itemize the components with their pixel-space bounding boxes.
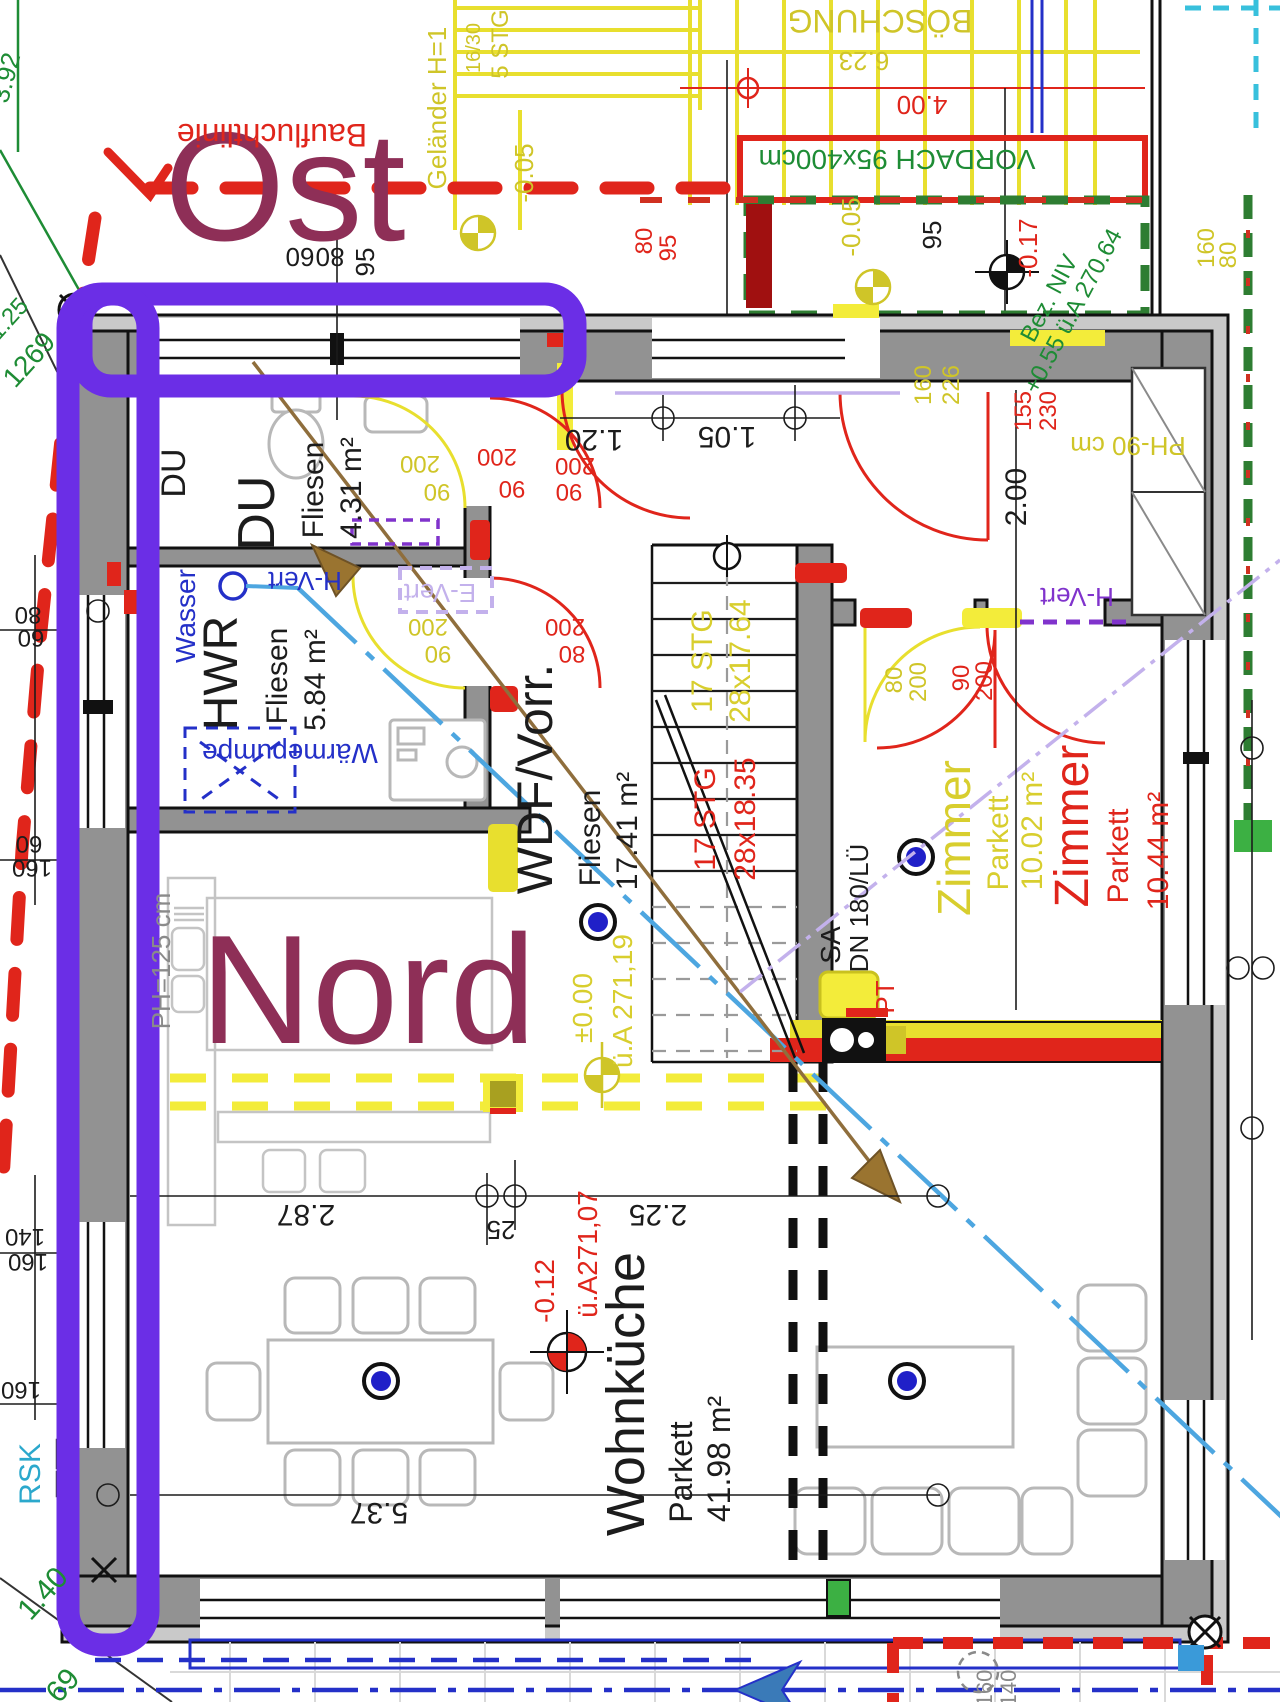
stg1630-label: 16/30 [463,23,485,73]
wdf-room-area: 17.41 m² [611,772,644,890]
kueche-room-area: 41.98 m² [701,1396,737,1523]
dim-80y: 80 [1215,242,1242,269]
ph125-label: PH=125 cm [146,893,176,1030]
zimmer-y-area: 10.02 m² [1016,772,1049,890]
boeschung-label: BÖSCHUNG [788,3,973,39]
stg5-label: 5 STG [487,9,514,78]
level-ua19: ü.A 271,19 [607,934,638,1068]
dim-80r: 80 [631,228,658,255]
kueche-room-name: Wohnküche [596,1252,656,1536]
zimmer-y-floor: Parkett [982,795,1015,891]
gelaender-label: Geländer H=1 [422,27,452,190]
sa-label: SA [815,926,846,964]
ldim-160c: 160 [1,1376,41,1403]
dim-225: 2.25 [629,1198,687,1231]
du-room-floor: Fliesen [297,442,330,539]
dim-400: 4.00 [897,90,948,120]
du-door-y90: 90 [424,478,451,505]
hwr-room-name: HWR [195,616,248,731]
dim-623: 6.23 [839,46,890,76]
dim-105: 1.05 [698,420,756,453]
floorplan-canvas: Ost Nord Baufluchtlinie Geländer H=1 5 S… [0,0,1280,1702]
green-392: 3.92 [0,49,26,106]
green-69: 69 [40,1662,87,1702]
dim-120: 1.20 [565,423,623,456]
du-door-r90: 90 [499,475,526,502]
hvert2-label: H-Vert [1039,582,1113,612]
wdf-door-y90: 90 [425,640,452,667]
dim-160w: 160 [910,365,937,405]
dn-label: DN 180/LÜ [844,844,874,973]
zimmer-door-y200: 200 [905,662,932,702]
compass-nord: Nord [200,903,536,1076]
kueche-room-floor: Parkett [663,1421,699,1522]
light-icon [364,1364,398,1398]
dim-287: 2.87 [277,1198,335,1231]
zimmer-door-r200: 200 [971,661,998,701]
level-000: ±0.00 [567,973,598,1043]
wdf-door-r200: 200 [545,613,585,640]
waermepumpe-label: Wärmepumpe [202,738,378,769]
dim-005b: -0.05 [836,197,866,256]
ldim-160b: 160 [8,1248,48,1275]
zimmer-r-floor: Parkett [1102,808,1135,904]
entry-door-r90: 90 [556,478,583,505]
wdf-door-r80: 80 [559,640,586,667]
light-icon [581,905,615,939]
level-marker-icon [856,270,890,304]
stair-red-stg: 17 STG [689,767,722,870]
du-room-name: DU [228,475,286,550]
stair-yellow-stg: 17 STG [686,609,719,712]
ldim-160a: 160 [12,854,52,881]
hwr-room-area: 5.84 m² [299,629,332,731]
dim-005a: -0.05 [509,143,539,202]
pt-label: PT [870,980,900,1013]
dim-226: 226 [938,365,965,405]
dim-95b: 95 [917,221,947,250]
stair-yellow-step: 28x17.64 [724,599,757,722]
du-room-area: 4.31 m² [335,437,368,539]
hvert1-label: H-Vert [267,566,341,596]
du-door-r200: 200 [477,443,517,470]
zimmer-r-name: Zimmer [1046,745,1099,908]
dim-230: 230 [1035,391,1062,431]
bdim-160: 160 [972,1670,997,1702]
light-icon [890,1364,924,1398]
vordach-label: VORDACH 95x400cm [759,144,1036,175]
du-door-y200: 200 [400,450,440,477]
zimmer-r-area: 10.44 m² [1142,792,1175,910]
baufluchtlinie-label: Baufluchtlinie [177,117,367,153]
dim-95c: 95 [655,235,682,262]
level-marker-icon [461,216,495,250]
dim-95a: 95 [350,248,380,277]
wdf-door-y200: 200 [408,613,448,640]
du-small-label: DU [155,448,193,497]
dim-537: 5.37 [350,1496,408,1529]
entry-door-r200: 200 [555,452,595,479]
dim-017: -0.17 [1013,218,1043,277]
wasser-label: Wasser [170,569,201,663]
bdim-140: 140 [996,1670,1021,1702]
dim-80: 80 [316,242,345,272]
ldim-60b: 60 [16,830,43,857]
dim-155: 155 [1010,391,1037,431]
ldim-140: 140 [5,1223,45,1250]
ldim-60a: 60 [18,624,45,651]
dim-60: 60 [286,242,315,272]
hwr-room-floor: Fliesen [261,628,294,725]
dim-25: 25 [487,1215,516,1245]
wdf-room-floor: Fliesen [574,790,607,887]
rsk-label: RSK [14,1443,47,1505]
zimmer-y-name: Zimmer [928,760,980,916]
text-labels: Ost Nord Baufluchtlinie Geländer H=1 5 S… [0,3,1242,1702]
evert-label: E-Vert [403,578,476,608]
level-012: -0.12 [529,1259,560,1323]
dim-200v: 2.00 [1000,468,1033,526]
wdf-room-name: WDF/Vorr. [507,664,563,895]
zimmer-door-y80: 80 [881,667,908,694]
level-ua07: ü.A271,07 [572,1190,603,1318]
stair-red-step: 28x18.35 [729,757,762,880]
ldim-80: 80 [15,601,42,628]
ph90-label: PH-90 cm [1070,431,1186,461]
